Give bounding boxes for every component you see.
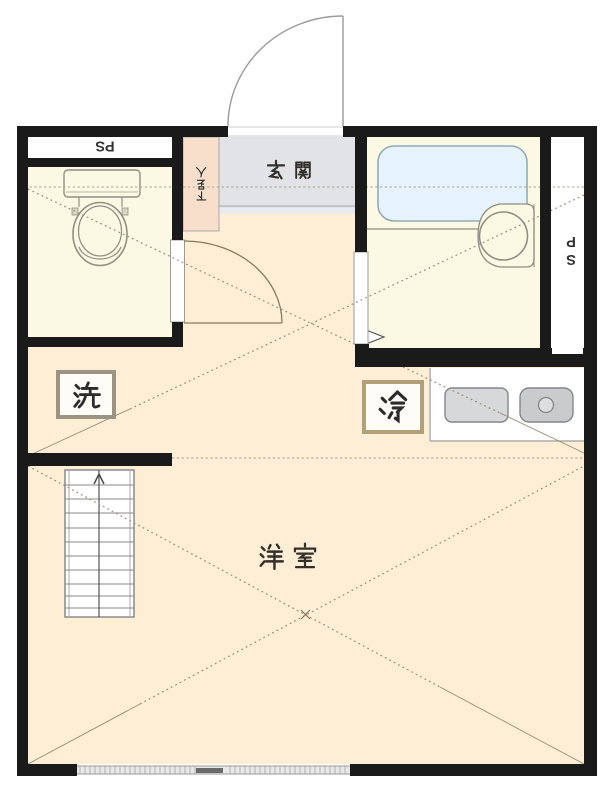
svg-text:PS: PS — [95, 138, 115, 154]
svg-text:S: S — [566, 251, 576, 267]
svg-text:P: P — [566, 233, 576, 249]
